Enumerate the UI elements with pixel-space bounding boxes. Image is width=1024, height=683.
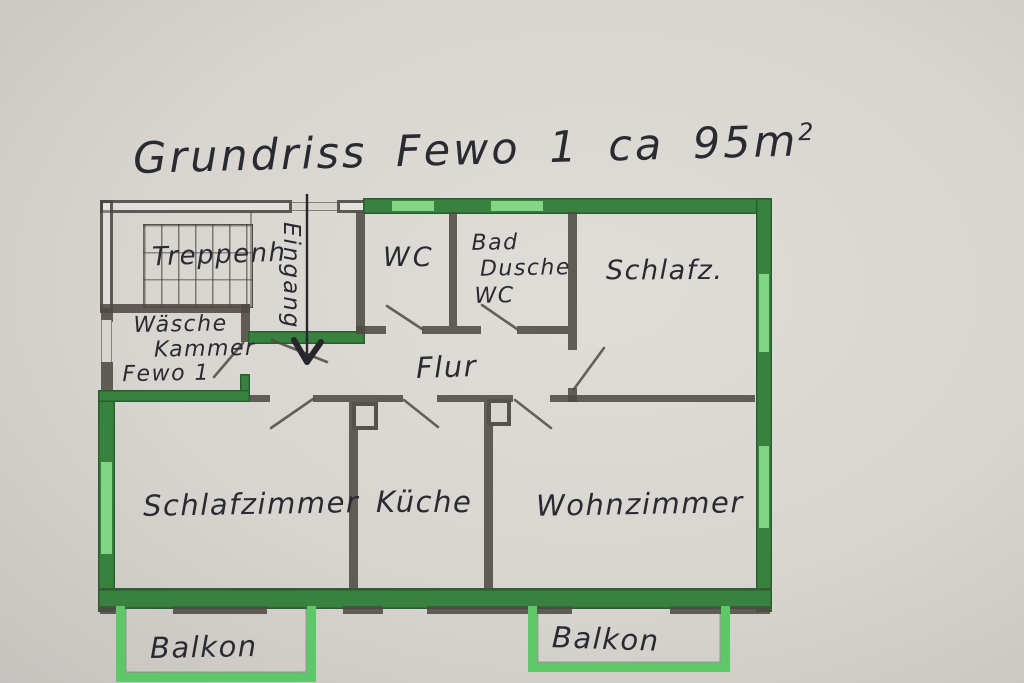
label-waeschekammer: Wäsche Kammer Fewo 1 bbox=[121, 312, 256, 388]
window-bad bbox=[491, 201, 543, 211]
label-balkon-left: Balkon bbox=[150, 629, 258, 665]
window-wohnzimmer bbox=[759, 446, 769, 528]
window-wc bbox=[392, 201, 434, 211]
label-wc: WC bbox=[383, 242, 435, 273]
label-eingang: Eingang bbox=[278, 222, 304, 357]
label-bad-line3: WC bbox=[474, 282, 571, 310]
wall-waesche-bottom-green bbox=[98, 390, 250, 402]
label-bad: Bad Dusche WC bbox=[471, 229, 571, 310]
wall-left-top bbox=[100, 200, 113, 312]
wall-wc-bottom-b bbox=[422, 326, 449, 334]
plan-title: Grundriss Fewo 1 ca 95m2 bbox=[132, 116, 817, 184]
label-schlafz: Schlafz. bbox=[606, 255, 723, 286]
wall-flur-bottom-a bbox=[250, 395, 270, 402]
wall-bad-bottom-a bbox=[457, 326, 481, 334]
wall-bad-bottom-b bbox=[517, 326, 568, 334]
plan-title-text: Grundriss Fewo 1 ca 95m bbox=[132, 117, 799, 184]
plan-title-superscript: 2 bbox=[798, 118, 817, 146]
window-schlafzimmer bbox=[101, 462, 112, 554]
floorplan-photo: Grundriss Fewo 1 ca 95m2 bbox=[0, 0, 1024, 683]
wall-wc-bad bbox=[449, 212, 457, 334]
label-wohnzimmer: Wohnzimmer bbox=[536, 485, 744, 523]
label-flur: Flur bbox=[415, 349, 477, 385]
label-waesche-line2: Kammer bbox=[154, 336, 256, 362]
label-waesche-line1: Wäsche bbox=[133, 312, 255, 339]
room-flur bbox=[250, 338, 755, 395]
wall-kueche-wohnzimmer bbox=[484, 402, 493, 588]
wall-flur-bottom-d bbox=[550, 395, 755, 402]
label-balkon-right: Balkon bbox=[551, 620, 660, 658]
wall-bottom-outer-c bbox=[343, 606, 383, 614]
window-waeschekammer bbox=[101, 320, 112, 364]
wall-right-green bbox=[756, 198, 772, 612]
label-bad-line2: Dusche bbox=[480, 256, 571, 284]
wall-wc-left bbox=[356, 212, 365, 334]
label-schlafzimmer: Schlafzimmer bbox=[143, 485, 360, 523]
label-bad-line1: Bad bbox=[471, 229, 570, 257]
wall-top-left bbox=[100, 200, 292, 213]
room-eingang-corridor bbox=[252, 213, 356, 333]
window-schlafz bbox=[759, 274, 769, 352]
wall-wc-bottom-a bbox=[356, 326, 386, 334]
entrance-door-opening bbox=[292, 202, 337, 211]
label-waesche-line3: Fewo 1 bbox=[122, 361, 256, 388]
wall-flur-bottom-b bbox=[313, 395, 403, 402]
label-kueche: Küche bbox=[376, 485, 472, 519]
label-treppenhaus: Treppenh bbox=[152, 238, 287, 273]
